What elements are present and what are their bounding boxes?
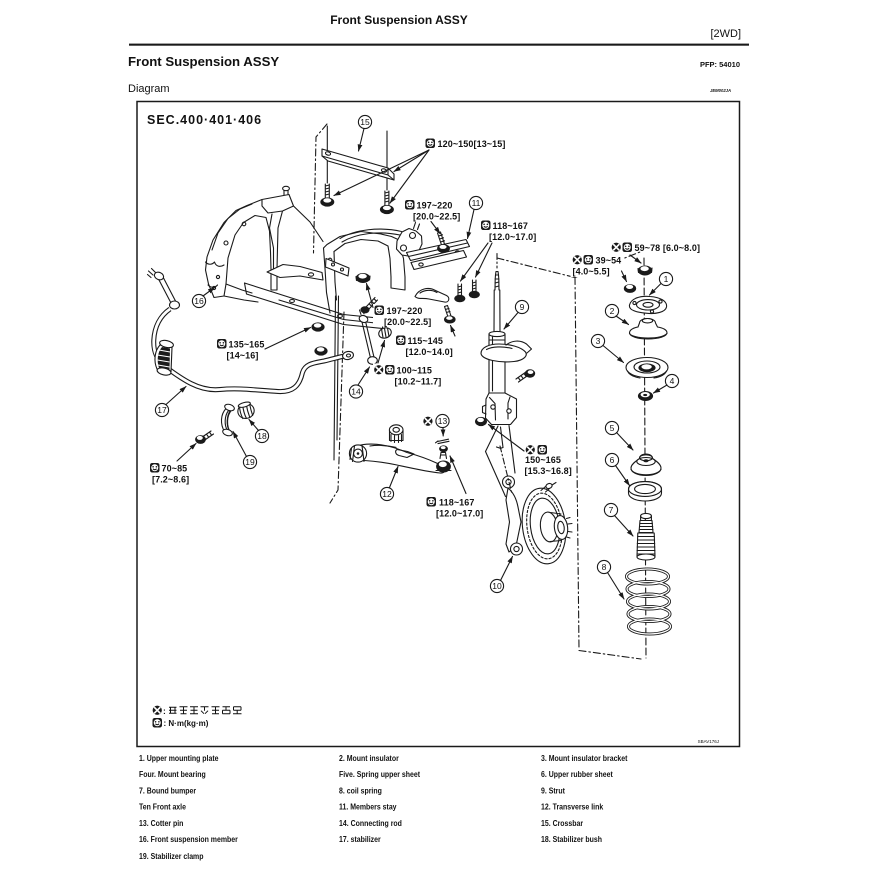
svg-text:5: 5 [610, 423, 615, 433]
svg-text:[12.0~14.0]: [12.0~14.0] [406, 347, 453, 357]
svg-text:[10.2~11.7]: [10.2~11.7] [395, 377, 442, 387]
svg-text:Five. Spring upper sheet: Five. Spring upper sheet [339, 770, 421, 780]
svg-text:: N·m(kg·m): : N·m(kg·m) [164, 719, 209, 728]
svg-text:19. Stabilizer clamp: 19. Stabilizer clamp [139, 851, 204, 861]
svg-text:8: 8 [602, 562, 607, 572]
svg-text:[4.0~5.5]: [4.0~5.5] [573, 267, 610, 277]
svg-text:[12.0~17.0]: [12.0~17.0] [436, 509, 483, 519]
svg-text:8. coil spring: 8. coil spring [339, 786, 382, 796]
svg-text:[20.0~22.5]: [20.0~22.5] [384, 317, 431, 327]
svg-text:1: 1 [664, 274, 669, 284]
svg-text:6. Upper rubber sheet: 6. Upper rubber sheet [541, 770, 613, 780]
svg-text:JEM002JA: JEM002JA [710, 88, 731, 93]
svg-text:70~85: 70~85 [162, 464, 188, 474]
svg-text:Ten Front axle: Ten Front axle [139, 802, 186, 812]
svg-text:10: 10 [492, 581, 502, 591]
svg-text:[20.0~22.5]: [20.0~22.5] [413, 212, 460, 222]
svg-text:[14~16]: [14~16] [227, 351, 259, 361]
svg-text:2. Mount insulator: 2. Mount insulator [339, 754, 399, 764]
svg-text:14: 14 [351, 387, 361, 397]
svg-text:16: 16 [194, 296, 204, 306]
svg-text:1. Upper mounting plate: 1. Upper mounting plate [139, 754, 219, 764]
svg-text:150~165: 150~165 [525, 455, 561, 465]
svg-text:118~167: 118~167 [439, 498, 475, 508]
svg-text:15. Crossbar: 15. Crossbar [541, 818, 583, 828]
svg-text:197~220: 197~220 [417, 201, 453, 211]
svg-text:9. Strut: 9. Strut [541, 786, 565, 796]
svg-text:16. Front suspension member: 16. Front suspension member [139, 835, 238, 845]
svg-text:7: 7 [609, 505, 614, 515]
svg-text:2: 2 [610, 306, 615, 316]
svg-text:120~150[13~15]: 120~150[13~15] [438, 139, 506, 149]
svg-text:Four. Mount bearing: Four. Mount bearing [139, 770, 206, 780]
svg-text:13. Cotter pin: 13. Cotter pin [139, 818, 184, 828]
svg-text:[7.2~8.6]: [7.2~8.6] [152, 475, 189, 485]
svg-text:Diagram: Diagram [128, 83, 170, 95]
svg-text:SEC.400·401·406: SEC.400·401·406 [147, 113, 262, 127]
svg-text:11: 11 [472, 198, 481, 208]
svg-text:Front Suspension ASSY: Front Suspension ASSY [330, 13, 468, 27]
svg-text:[2WD]: [2WD] [710, 28, 741, 40]
svg-text:13: 13 [438, 416, 448, 426]
svg-text:Front Suspension ASSY: Front Suspension ASSY [128, 54, 279, 69]
svg-text:18: 18 [257, 431, 267, 441]
svg-text:17: 17 [157, 405, 167, 415]
svg-text::: : [163, 706, 166, 716]
svg-text:197~220: 197~220 [387, 306, 423, 316]
svg-text:3. Mount insulator bracket: 3. Mount insulator bracket [541, 754, 628, 764]
svg-text:17. stabilizer: 17. stabilizer [339, 835, 381, 845]
svg-text:PFP: 54010: PFP: 54010 [700, 60, 740, 69]
svg-text:18. Stabilizer bush: 18. Stabilizer bush [541, 835, 602, 845]
svg-text:39~54: 39~54 [596, 256, 622, 266]
svg-text:SBAV176J: SBAV176J [698, 739, 719, 744]
svg-text:[15.3~16.8]: [15.3~16.8] [525, 466, 572, 476]
svg-text:7. Bound bumper: 7. Bound bumper [139, 786, 196, 796]
svg-text:115~145: 115~145 [408, 336, 444, 346]
svg-text:[12.0~17.0]: [12.0~17.0] [489, 232, 536, 242]
svg-text:12: 12 [382, 489, 392, 499]
svg-text:15: 15 [360, 117, 370, 127]
svg-text:14. Connecting rod: 14. Connecting rod [339, 818, 402, 828]
svg-text:11. Members stay: 11. Members stay [339, 802, 397, 812]
svg-text:118~167: 118~167 [493, 221, 529, 231]
svg-text:6: 6 [610, 455, 615, 465]
svg-text:3: 3 [596, 336, 601, 346]
svg-text:19: 19 [245, 457, 255, 467]
svg-text:9: 9 [520, 302, 525, 312]
svg-text:4: 4 [670, 376, 675, 386]
svg-text:59~78 [6.0~8.0]: 59~78 [6.0~8.0] [635, 243, 701, 253]
svg-text:12. Transverse link: 12. Transverse link [541, 802, 604, 812]
svg-text:135~165: 135~165 [229, 340, 265, 350]
svg-text:100~115: 100~115 [397, 366, 433, 376]
